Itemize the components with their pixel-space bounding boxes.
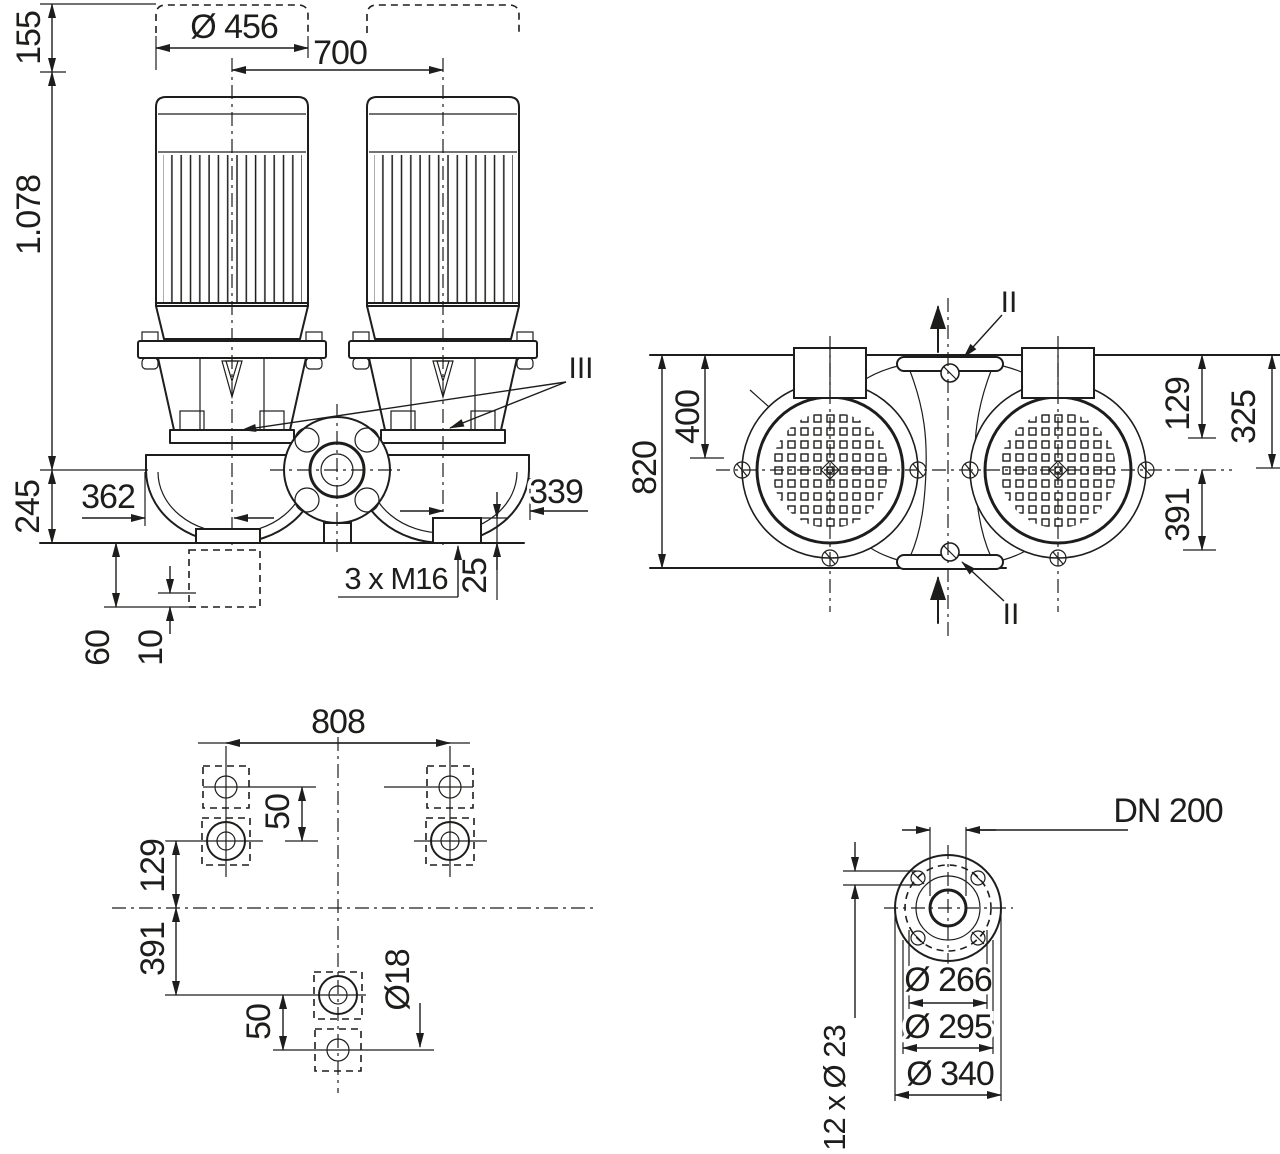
flange-view: DN 200 Ø 266 Ø 295 Ø 340 12 x Ø 23 [817, 792, 1223, 1151]
dim-raised-face: Ø 295 [904, 1008, 992, 1046]
dim-nominal-diameter: DN 200 [1113, 792, 1222, 830]
dim-bolt-holes: 12 x Ø 23 [817, 1025, 852, 1150]
label-section-two-top: II [1001, 286, 1018, 319]
dim-bolt-circle: Ø 266 [904, 961, 992, 999]
dim-pedestal-height: 60 [79, 630, 117, 666]
top-view-dimensions: 820 400 129 391 325 II II [626, 286, 1280, 631]
dim-outer-diameter: Ø 340 [906, 1055, 994, 1093]
top-view: 820 400 129 391 325 II II [626, 286, 1280, 636]
dim-shim-height: 10 [132, 630, 170, 666]
pump-dimension-drawing: 155 1.078 245 Ø 456 700 362 339 25 [0, 0, 1280, 1154]
dim-clearance-top: 155 [10, 11, 48, 65]
dim-bolt-span: 808 [311, 703, 365, 741]
dim-flange-offset: 325 [1225, 390, 1263, 444]
dim-base-height: 245 [9, 480, 47, 534]
dim-right-offset: 339 [529, 473, 583, 511]
label-section-two-bottom: II [1003, 598, 1020, 631]
dim-motor-diameter: Ø 456 [190, 8, 278, 46]
dim-upper-offset-plan: 129 [134, 839, 172, 893]
label-section-three: III [568, 352, 593, 385]
dim-upper-offset: 129 [1159, 377, 1197, 431]
foot-pad-upper-right [426, 746, 474, 877]
dim-total-height: 1.078 [10, 175, 48, 255]
anchor-boss [433, 518, 481, 543]
dim-port-to-port: 820 [626, 441, 664, 495]
label-anchor-bolts: 3 x M16 [344, 561, 447, 596]
foundation-block [189, 550, 260, 607]
dim-left-offset: 362 [81, 478, 135, 516]
front-view: 155 1.078 245 Ø 456 700 362 339 25 [9, 4, 594, 666]
dim-motor-spacing: 700 [313, 34, 367, 72]
foot-plan-dimensions: 808 50 129 391 50 Ø18 [134, 703, 470, 1050]
flange-dimensions: DN 200 Ø 266 Ø 295 Ø 340 12 x Ø 23 [817, 792, 1223, 1151]
foot-plan-view: 808 50 129 391 50 Ø18 [112, 703, 596, 1093]
dim-hole-diameter: Ø18 [379, 949, 417, 1010]
pump-foot-left [196, 529, 260, 543]
dim-lower-offset-plan: 391 [134, 922, 172, 976]
dim-face-to-axis: 400 [669, 390, 707, 444]
dim-slot-bottom: 50 [240, 1004, 278, 1040]
dim-slot-top: 50 [259, 794, 297, 830]
dim-lower-offset: 391 [1159, 488, 1197, 542]
dim-boss-height: 25 [456, 558, 494, 594]
foot-pad-upper-left [202, 746, 250, 877]
drawing-page: 155 1.078 245 Ø 456 700 362 339 25 [0, 0, 1280, 1154]
